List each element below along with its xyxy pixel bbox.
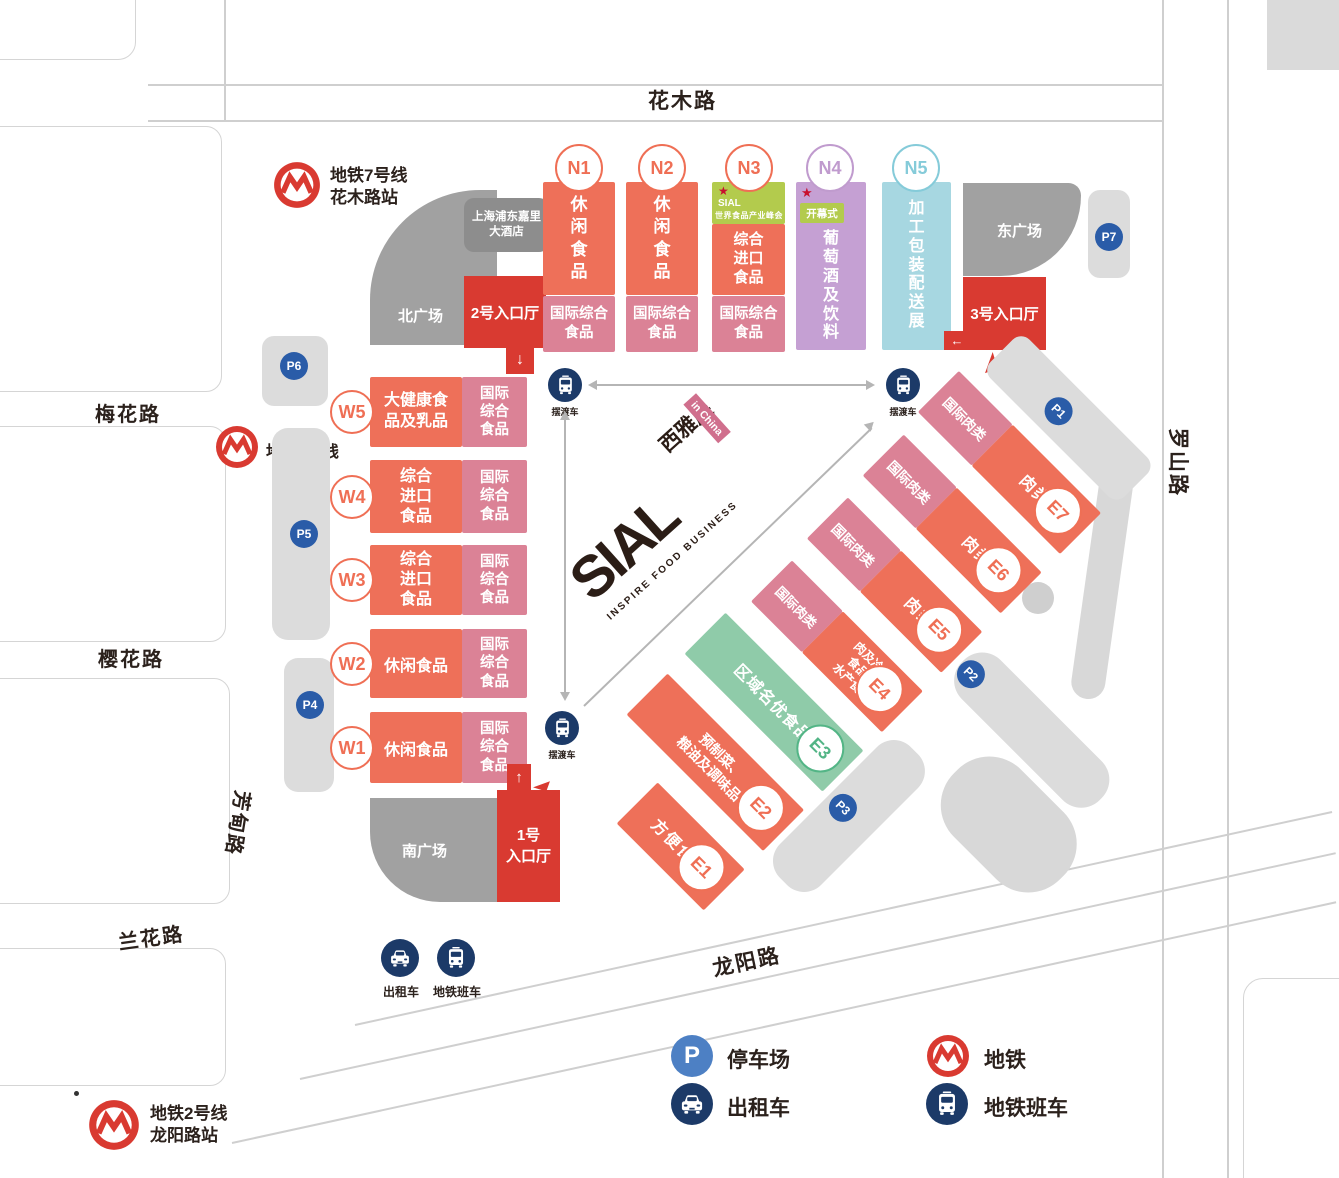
city-block	[1243, 978, 1339, 1178]
hall-n2-base: 国际综合 食品	[626, 296, 698, 352]
parking-p4: P4	[296, 691, 324, 719]
city-block	[0, 0, 136, 60]
arrowhead	[560, 411, 570, 420]
taxi-icon	[381, 939, 419, 977]
hall-n2-badge: N2	[638, 144, 686, 192]
legend-parking-label: 停车场	[727, 1044, 790, 1074]
city-block-fill	[1267, 0, 1339, 70]
city-block	[0, 126, 222, 392]
east-plaza-label: 东广场	[997, 220, 1042, 241]
hotel-block: 上海浦东嘉里 大酒店	[464, 198, 549, 252]
north-plaza-label: 北广场	[398, 305, 443, 326]
metro-line7-station-label: 地铁7号线 花木路站	[330, 165, 407, 209]
hall-n4-ceremony: 开幕式	[800, 203, 844, 223]
metro-line2-station-label: 地铁2号线 龙阳路站	[150, 1103, 227, 1147]
star-icon: ★	[801, 185, 813, 201]
hall-n4: ★ 开幕式 葡 萄 酒 及 饮 料	[796, 182, 866, 350]
sial-logo-name: SIAL	[557, 483, 691, 613]
arrowhead	[864, 418, 877, 431]
hall-w4-side: 国际 综合 食品	[462, 460, 527, 533]
hall-w5-main: 大健康食 品及乳品	[370, 377, 462, 447]
hall-n2-main: 休 闲 食 品	[626, 182, 698, 295]
metro-bus-label: 地铁班车	[426, 983, 488, 1000]
hall-w4-badge: W4	[330, 475, 374, 519]
hall-n3-summit-brand: SIAL	[718, 198, 741, 209]
hall-n5: 加 工 包 装 配 送 展	[882, 182, 951, 350]
parking-p5: P5	[290, 520, 318, 548]
road-label-huamu: 花木路	[648, 85, 717, 115]
hall-w2-badge: W2	[330, 642, 374, 686]
shuttle-bus-icon	[548, 368, 582, 402]
entrance-3-arrow: ←	[944, 331, 970, 350]
road-line	[224, 0, 226, 120]
parking-p7: P7	[1095, 223, 1123, 251]
hall-n3-base: 国际综合 食品	[712, 296, 785, 352]
legend-metro-bus-label: 地铁班车	[984, 1092, 1068, 1122]
legend-parking-icon: P	[671, 1035, 713, 1077]
entrance-hall-3: 3号入口厅	[963, 277, 1046, 350]
map-dot	[74, 1091, 79, 1096]
shuttle-route-arrow	[596, 384, 868, 386]
hall-w3-main: 综合 进口 食品	[370, 545, 462, 615]
metro-bus-icon	[437, 939, 475, 977]
venue-map: 花木路 罗山路 龙阳路 梅花路 樱花路 兰花路 芳甸路 地铁7号线 花木路站 地…	[0, 0, 1339, 1178]
arrowhead	[866, 380, 875, 390]
hall-n1-base: 国际综合 食品	[543, 296, 615, 352]
hall-w1-badge: W1	[330, 726, 374, 770]
road-label-meihua: 梅花路	[95, 398, 161, 427]
hall-n4-badge: N4	[806, 144, 854, 192]
hall-w5-badge: W5	[330, 390, 374, 434]
legend-metro-label: 地铁	[984, 1044, 1026, 1074]
hall-w4-main: 综合 进口 食品	[370, 460, 462, 533]
legend-taxi-icon	[671, 1083, 713, 1125]
legend-metro-icon	[926, 1034, 970, 1078]
hall-n3-main: 综合 进口 食品	[712, 224, 785, 295]
entrance-2-arrow: ↓	[506, 346, 534, 374]
hall-n5-badge: N5	[892, 144, 940, 192]
city-block	[0, 948, 226, 1086]
arrowhead	[588, 380, 597, 390]
p4-strip	[284, 658, 334, 792]
arrowhead	[560, 692, 570, 701]
hall-w1-main: 休闲食品	[370, 712, 462, 783]
hall-n3-badge: N3	[725, 144, 773, 192]
metro-line2-station-icon	[88, 1099, 140, 1151]
shuttle-bus-icon	[545, 711, 579, 745]
road-line	[148, 120, 1163, 122]
road-label-yinghua: 樱花路	[98, 643, 164, 672]
hall-w2-main: 休闲食品	[370, 629, 462, 698]
legend-metro-bus-icon	[926, 1083, 968, 1125]
hall-w2-side: 国际 综合 食品	[462, 629, 527, 698]
road-line	[1227, 0, 1229, 1178]
south-plaza-label: 南广场	[402, 840, 447, 861]
taxi-label: 出租车	[373, 983, 429, 1000]
hall-n3-summit-label: 世界食品产业峰会	[715, 210, 783, 221]
legend-taxi-label: 出租车	[727, 1092, 790, 1122]
metro-line7-station-icon	[273, 161, 321, 209]
star-icon: ★	[718, 184, 729, 198]
city-block	[0, 426, 226, 642]
road-label-luoshan: 罗山路	[1164, 428, 1194, 538]
city-block	[0, 678, 230, 904]
hall-n1-badge: N1	[555, 144, 603, 192]
hall-n1-main: 休 闲 食 品	[543, 182, 615, 295]
hall-w3-badge: W3	[330, 558, 374, 602]
hall-w5-side: 国际 综合 食品	[462, 377, 527, 447]
parking-p6: P6	[280, 352, 308, 380]
hall-w3-side: 国际 综合 食品	[462, 545, 527, 615]
shuttle-bus-icon	[886, 368, 920, 402]
entrance-hall-2: 2号入口厅	[464, 276, 546, 348]
metro-line7-icon	[215, 425, 259, 469]
